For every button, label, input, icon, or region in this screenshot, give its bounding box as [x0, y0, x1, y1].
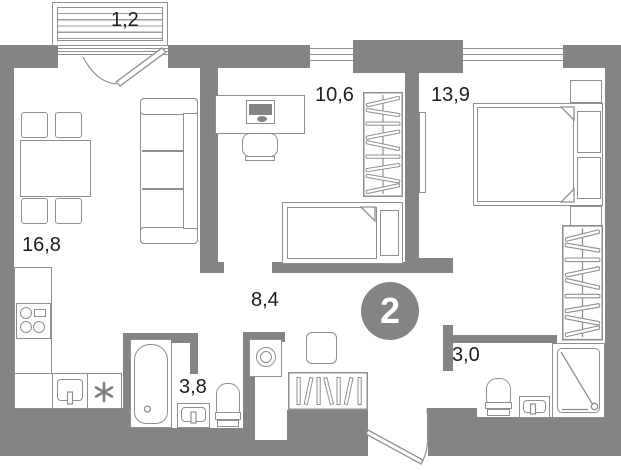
computer-stand: [257, 116, 267, 122]
sofa-armrest: [140, 227, 198, 244]
toilet-tank: [487, 409, 510, 416]
dining-chair: [55, 198, 82, 224]
window-bedroom: [463, 48, 563, 61]
stove-burner: [33, 321, 45, 333]
area-label-living: 16,8: [22, 234, 61, 257]
washing-machine-door-inner: [260, 351, 272, 363]
double-bed-pillow: [577, 111, 601, 153]
dining-chair: [21, 198, 48, 224]
wall-segment: [287, 410, 368, 440]
double-bed-pillow: [577, 157, 601, 199]
area-label-bathroom: 3,8: [179, 376, 207, 399]
single-bed-mattress: [287, 207, 377, 259]
balcony-decking: [57, 7, 163, 41]
kitchen-sink-basin: [57, 379, 83, 401]
area-label-bedroom: 13,9: [431, 84, 470, 107]
entry-door: [366, 409, 428, 464]
sofa-cushion-line: [142, 150, 183, 152]
wall-segment: [605, 45, 621, 456]
area-label-shower-wc: 3,0: [452, 344, 480, 367]
toilet-tank: [215, 412, 241, 420]
window-study: [310, 48, 353, 61]
wall-segment: [123, 428, 255, 440]
wardrobe-study: [364, 93, 403, 197]
desk-chair-base: [245, 156, 275, 161]
area-label-balcony: 1,2: [111, 9, 139, 32]
desk-chair: [242, 133, 278, 157]
wardrobe-bedroom: [563, 226, 602, 340]
bedroom-door-leaf: [419, 112, 426, 193]
room-count-badge: 2: [361, 282, 419, 340]
wall-segment: [427, 408, 477, 440]
wall-segment: [428, 440, 621, 456]
toilet-tank: [485, 402, 512, 409]
nightstand: [570, 80, 602, 103]
toilet-tank: [217, 420, 239, 427]
dining-chair: [21, 112, 48, 138]
balcony-window-sill: [58, 48, 168, 55]
bathtub-inner: [134, 344, 168, 424]
wall-segment: [452, 335, 557, 343]
stove-panel: [34, 309, 46, 317]
washbasin-bowl: [523, 400, 546, 413]
dining-table: [20, 140, 91, 197]
single-bed-pillow: [380, 210, 399, 256]
shoe-rack: [289, 373, 368, 410]
shower-tray: [557, 348, 600, 413]
stool: [306, 332, 337, 364]
wall-segment: [0, 440, 368, 456]
nightstand: [570, 206, 602, 226]
double-bed-mattress: [477, 107, 574, 202]
dining-chair: [55, 112, 82, 138]
sofa-backrest: [183, 113, 198, 229]
wall-segment: [473, 417, 621, 440]
computer-screen: [249, 104, 272, 115]
area-label-hallway: 8,4: [251, 289, 279, 312]
stove-burner: [20, 307, 32, 319]
wall-segment: [405, 258, 453, 273]
washbasin-bowl: [181, 407, 206, 422]
stove-burner: [20, 321, 32, 333]
wall-segment: [0, 408, 123, 440]
wall-segment: [190, 343, 198, 374]
wall-segment: [168, 45, 310, 68]
floor-plan: 1,2 16,8 10,6 13,9 8,4 3,8: [0, 0, 621, 471]
sofa-cushion-line: [142, 188, 183, 190]
toilet-bowl: [486, 378, 511, 404]
wall-segment: [200, 262, 224, 273]
toilet-bowl: [216, 383, 240, 414]
wall-segment: [405, 68, 419, 258]
area-label-study: 10,6: [315, 84, 354, 107]
wall-segment: [0, 45, 14, 456]
